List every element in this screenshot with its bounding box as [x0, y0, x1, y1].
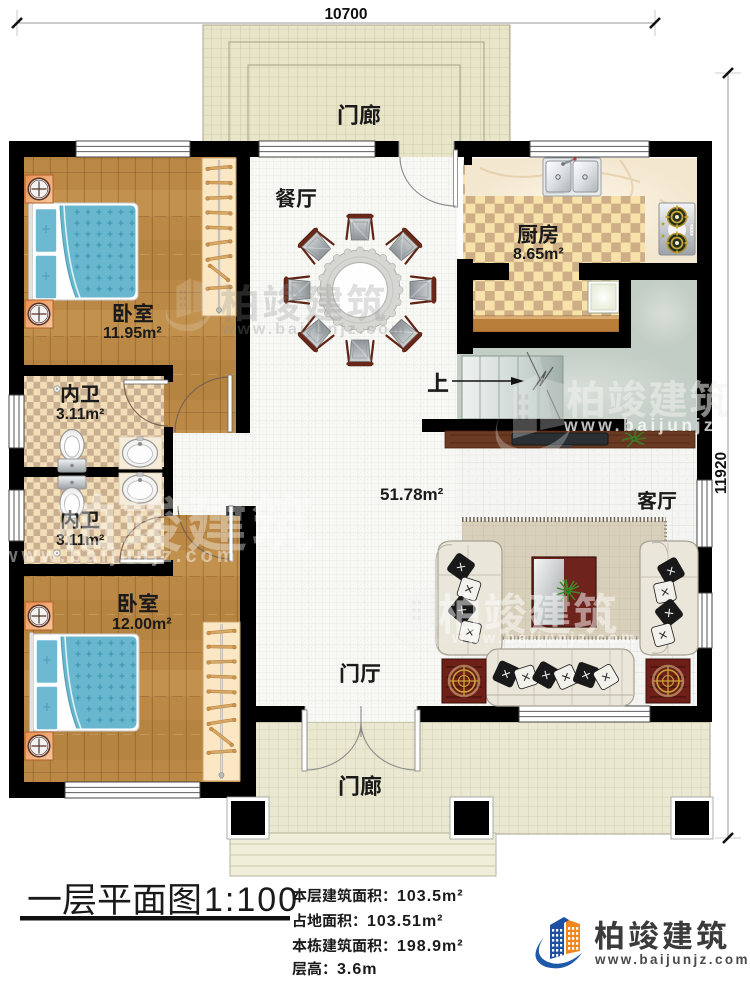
svg-text:1:100: 1:100 — [204, 881, 299, 919]
svg-text:103.51m²: 103.51m² — [367, 913, 444, 930]
svg-text:3.11m²: 3.11m² — [56, 406, 104, 423]
svg-text:198.9m²: 198.9m² — [397, 938, 464, 955]
svg-text:11.95m²: 11.95m² — [103, 325, 162, 342]
svg-text:103.5m²: 103.5m² — [397, 888, 464, 905]
svg-text:51.78m²: 51.78m² — [380, 485, 444, 504]
svg-text:3.6m: 3.6m — [337, 961, 377, 978]
svg-text:11920: 11920 — [713, 452, 730, 494]
svg-text:www.baijunjz.com: www.baijunjz.com — [221, 321, 408, 338]
svg-text:www.baijunjz.com: www.baijunjz.com — [594, 952, 750, 967]
svg-text:10700: 10700 — [324, 6, 367, 23]
svg-text:12.00m²: 12.00m² — [112, 616, 172, 633]
svg-text:www.baijunjz.com: www.baijunjz.com — [563, 415, 750, 435]
svg-text:8.65m²: 8.65m² — [513, 246, 564, 263]
svg-text:www.baijunjz.com: www.baijunjz.com — [1, 545, 239, 567]
svg-text:www.baijunjz.com: www.baijunjz.com — [451, 630, 638, 647]
